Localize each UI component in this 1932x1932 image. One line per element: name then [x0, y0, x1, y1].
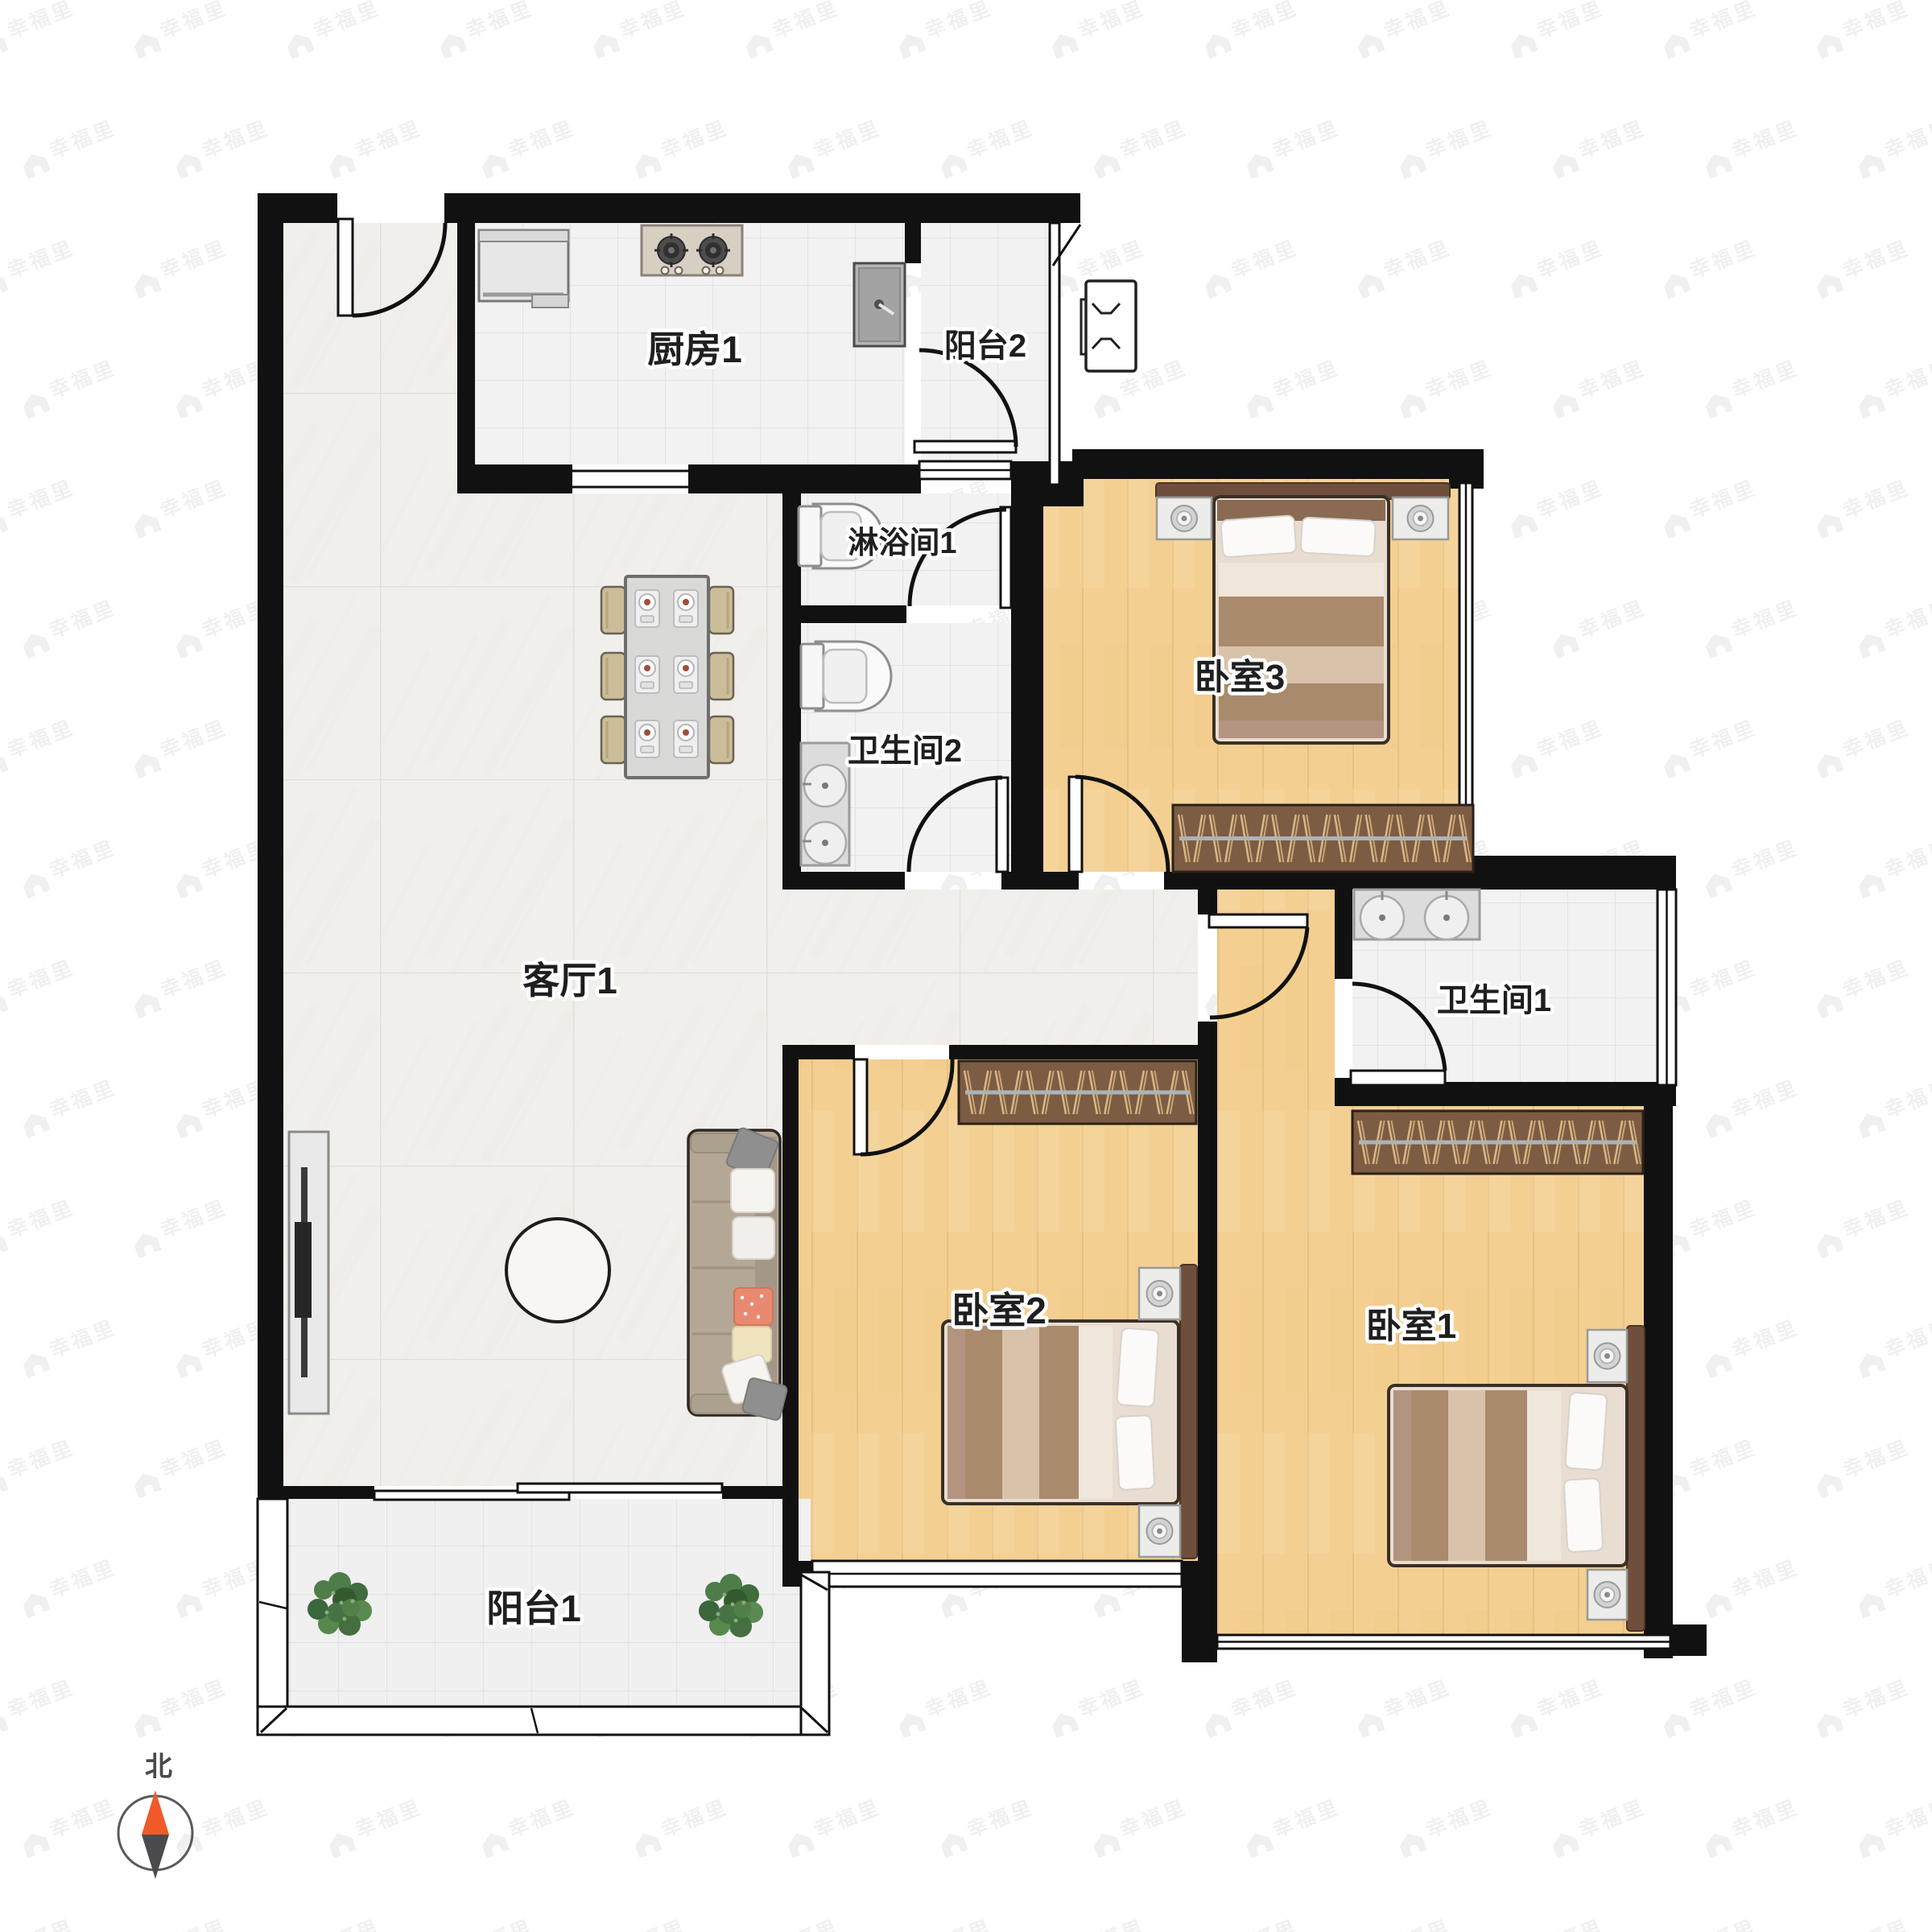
svg-text:卫生间1: 卫生间1 — [1437, 983, 1551, 1018]
svg-text:阳台1: 阳台1 — [486, 1587, 581, 1629]
svg-text:阳台2: 阳台2 — [944, 328, 1026, 364]
svg-text:卧室2: 卧室2 — [952, 1290, 1046, 1331]
svg-text:淋浴间1: 淋浴间1 — [848, 526, 956, 560]
svg-text:卧室1: 卧室1 — [1366, 1306, 1456, 1346]
svg-text:客厅1: 客厅1 — [522, 960, 617, 1001]
svg-text:卫生间2: 卫生间2 — [848, 733, 962, 769]
svg-text:北: 北 — [145, 1752, 172, 1782]
svg-text:卧室3: 卧室3 — [1195, 657, 1285, 697]
svg-text:厨房1: 厨房1 — [647, 328, 742, 370]
